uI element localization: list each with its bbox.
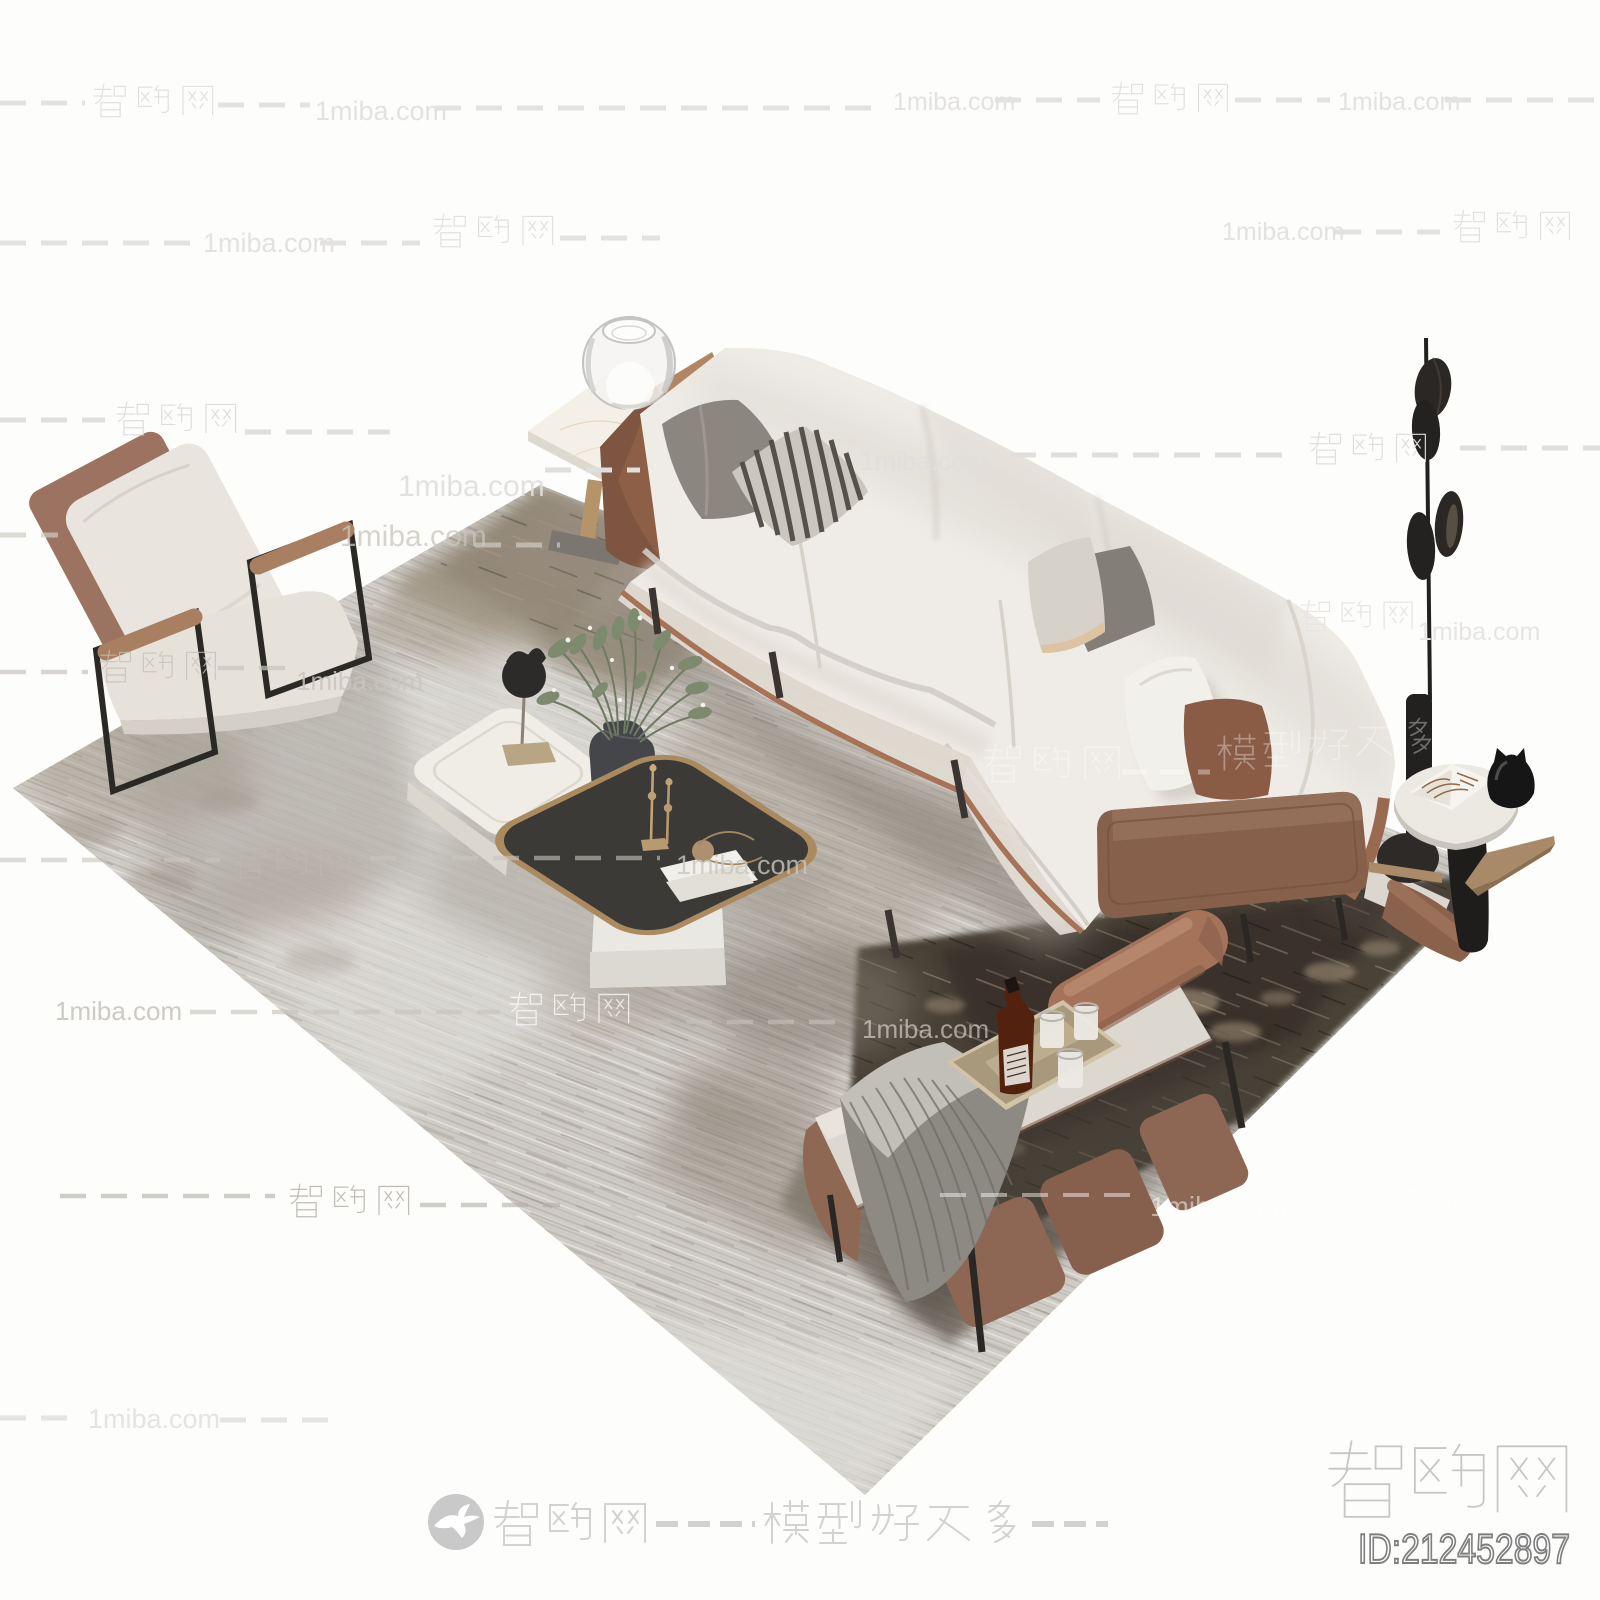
svg-text:1miba.com: 1miba.com <box>676 850 808 880</box>
svg-text:1miba.com: 1miba.com <box>340 520 487 553</box>
svg-text:1miba.com: 1miba.com <box>203 228 335 258</box>
svg-text:1miba.com: 1miba.com <box>1222 218 1344 246</box>
svg-text:1miba.com: 1miba.com <box>55 996 182 1026</box>
svg-text:1miba.com: 1miba.com <box>1418 618 1540 646</box>
svg-text:1miba.com: 1miba.com <box>398 470 545 503</box>
svg-text:1miba.com: 1miba.com <box>315 96 447 126</box>
svg-text:1miba.com: 1miba.com <box>860 446 987 476</box>
svg-text:1miba.com: 1miba.com <box>88 1404 220 1434</box>
svg-text:1miba.com: 1miba.com <box>1150 1191 1287 1222</box>
svg-text:ID:212452897: ID:212452897 <box>1358 1525 1570 1572</box>
svg-text:1miba.com: 1miba.com <box>296 666 423 696</box>
svg-text:1miba.com: 1miba.com <box>862 1014 989 1044</box>
svg-text:1miba.com: 1miba.com <box>1338 88 1460 116</box>
